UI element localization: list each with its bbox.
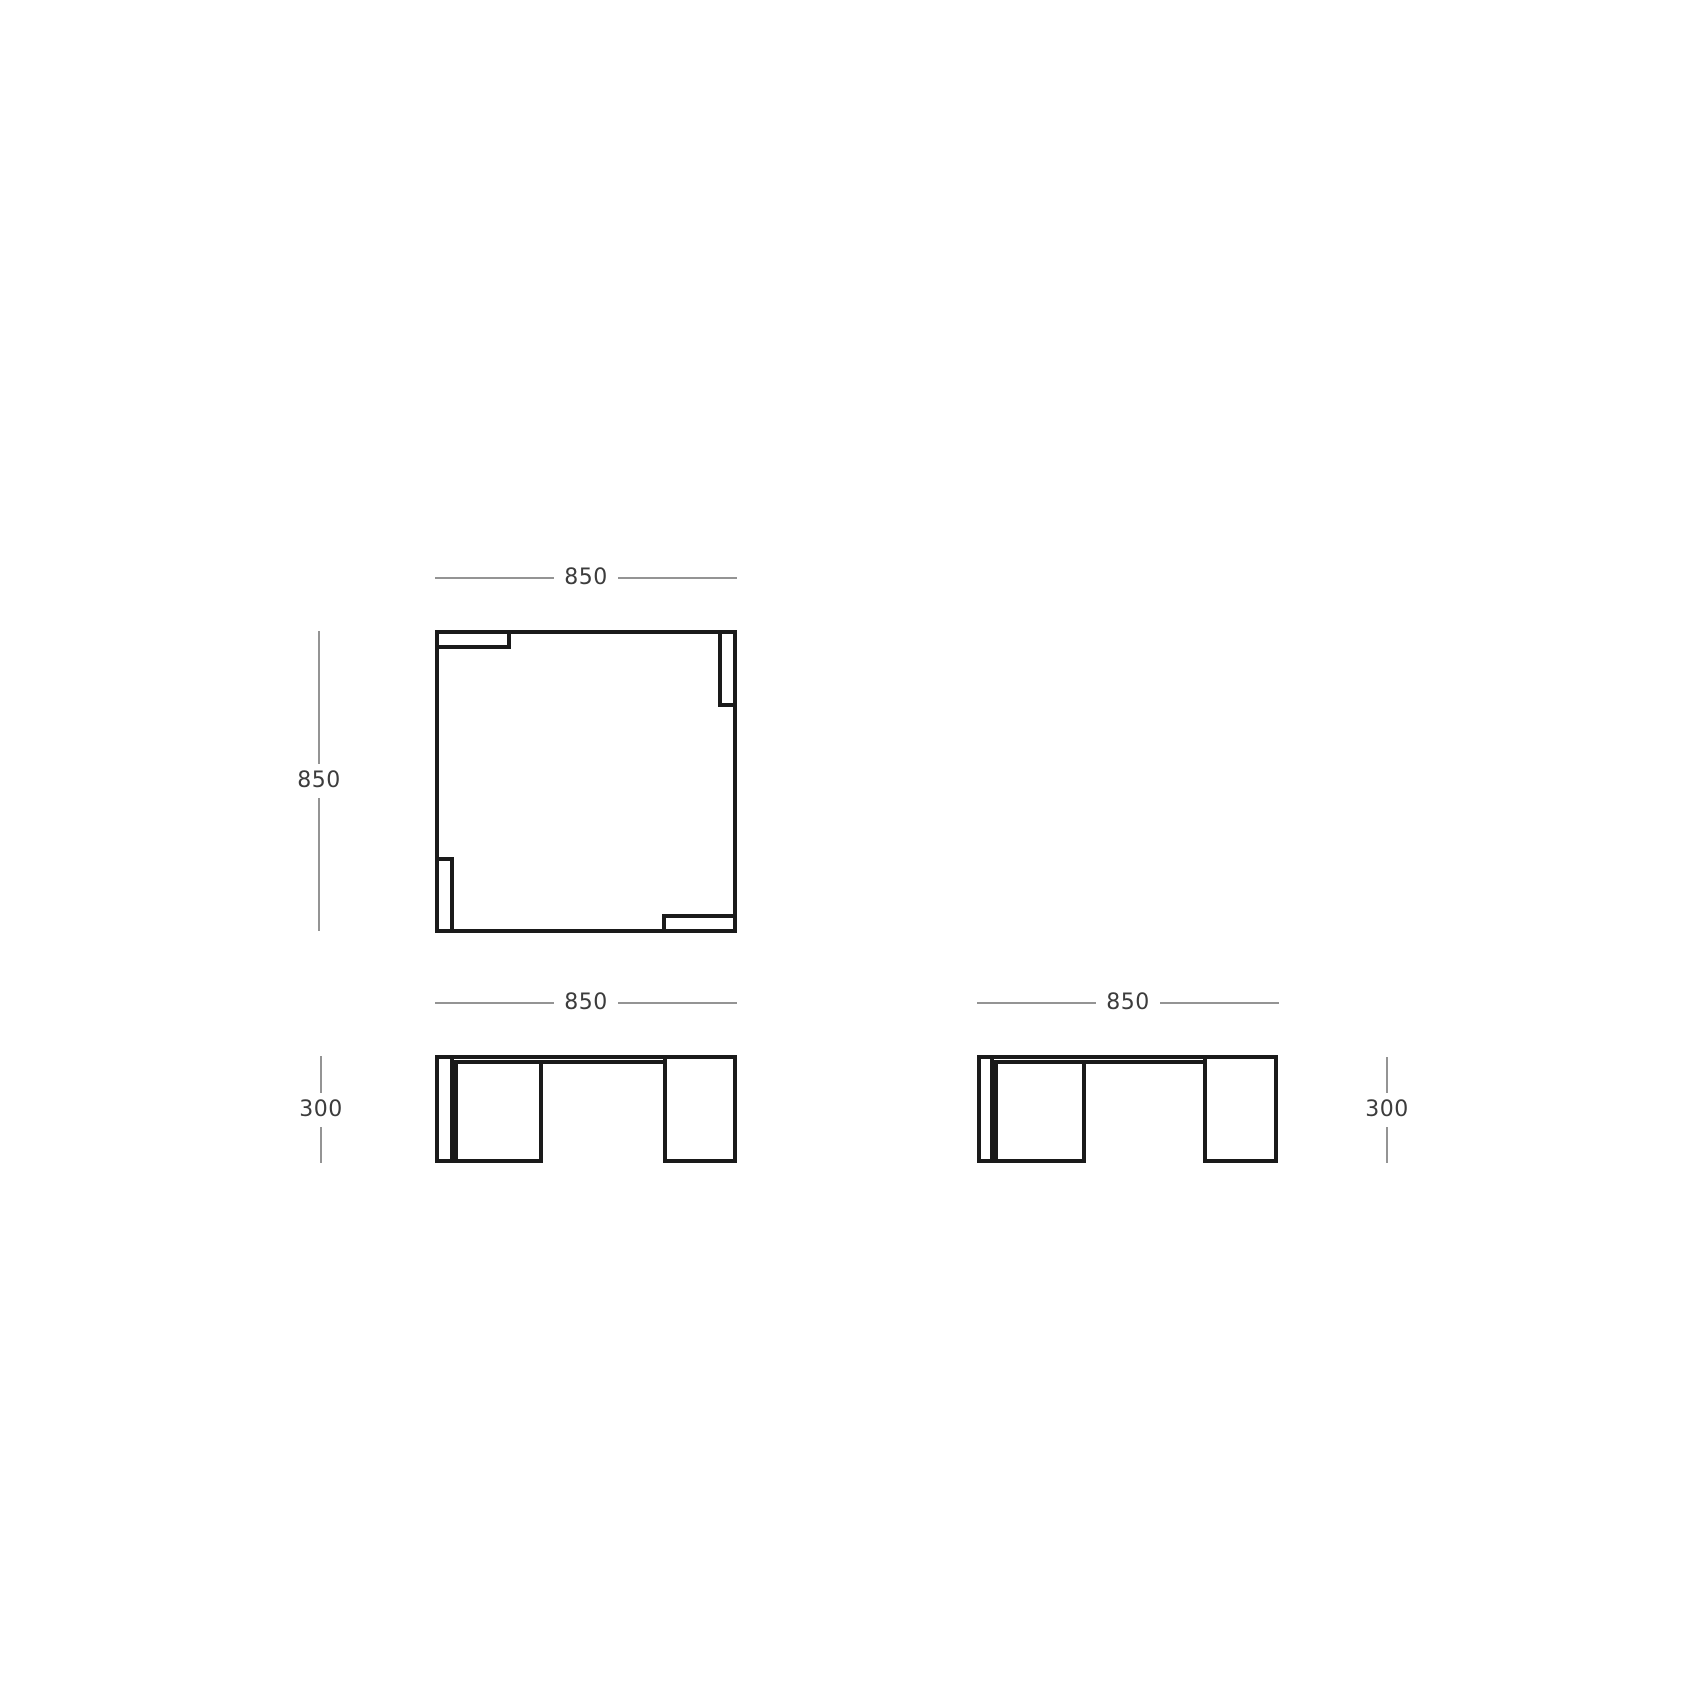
top-view-height-label: 850	[297, 764, 341, 798]
dimension-line-segment	[618, 577, 737, 579]
side-view-side-leg-edge	[977, 1055, 994, 1163]
side-view-rear-leg-panel	[994, 1060, 1086, 1163]
dimension-line-segment	[1160, 1002, 1279, 1004]
front-view-width-label: 850	[554, 992, 618, 1014]
side-view-front-leg-panel	[1203, 1055, 1278, 1163]
dimension-line-segment	[618, 1002, 737, 1004]
front-view-front-leg-panel	[663, 1055, 737, 1163]
side-view-tabletop-top-edge	[994, 1055, 1203, 1059]
dimension-line-segment	[320, 1127, 322, 1164]
front-view-height-dimension: 300	[299, 1056, 343, 1163]
leg-bottom-right	[662, 914, 737, 933]
dimension-line-segment	[977, 1002, 1096, 1004]
dimension-line-segment	[320, 1056, 322, 1093]
dimension-line-segment	[1386, 1057, 1388, 1093]
dimension-line-segment	[1386, 1127, 1388, 1163]
front-view-width-dimension: 850	[435, 992, 737, 1014]
dimension-line-segment	[435, 1002, 554, 1004]
top-view-height-dimension: 850	[297, 631, 341, 931]
front-view-rear-leg-panel	[454, 1060, 543, 1163]
leg-top-right	[718, 630, 737, 707]
dimension-line-segment	[435, 577, 554, 579]
front-view-side-leg-edge	[435, 1055, 454, 1163]
dimension-line-segment	[318, 798, 320, 931]
top-view-width-label: 850	[554, 567, 618, 589]
side-view-width-dimension: 850	[977, 992, 1279, 1014]
side-view-height-label: 300	[1365, 1093, 1409, 1127]
side-view-height-dimension: 300	[1365, 1057, 1409, 1163]
top-view-width-dimension: 850	[435, 567, 737, 589]
front-view-height-label: 300	[299, 1093, 343, 1127]
dimension-line-segment	[318, 631, 320, 764]
leg-top-left	[435, 630, 511, 649]
leg-bottom-left	[435, 857, 454, 933]
side-view-width-label: 850	[1096, 992, 1160, 1014]
furniture-dimension-drawing: 850 850 850 300	[0, 0, 1700, 1700]
tabletop-outline	[435, 630, 737, 933]
front-view-tabletop-top-edge	[454, 1055, 663, 1059]
